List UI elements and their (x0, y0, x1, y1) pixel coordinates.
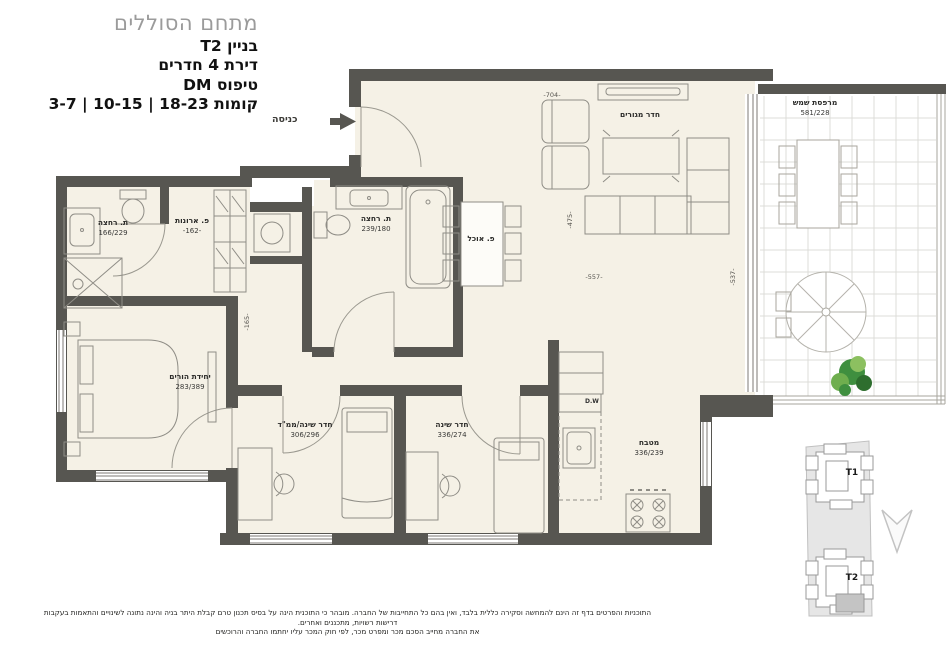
dim-living-top: -704- (530, 91, 574, 99)
terrace-floor (758, 92, 946, 404)
umbrella (786, 272, 866, 352)
floorplan-page: מתחם הסוללים בניין T2 דירת 4 חדרים טיפוס… (0, 0, 950, 650)
entrance-arrow-icon (330, 113, 356, 130)
dim-living-right: -537- (729, 255, 737, 299)
title-block: מתחם הסוללים בניין T2 דירת 4 חדרים טיפוס… (18, 12, 258, 112)
dim-living-left: -475- (566, 198, 574, 242)
room-label-bath-main: ת. רחצה 239/180 (328, 214, 424, 234)
keyplan-unit-highlight (836, 594, 864, 612)
room-label-kitchen: מטבח 336/239 (601, 438, 697, 458)
floors-range: קומות 18-23 | 10-15 | 3-7 (18, 96, 258, 112)
dishwasher-label: D.W (577, 398, 607, 405)
room-label-dining: פ. אוכל (433, 234, 529, 244)
entrance-label: כניסה (272, 114, 332, 125)
building-name: בניין T2 (18, 38, 258, 54)
room-label-living: חדר מגורים (592, 110, 688, 120)
room-label-bedroom-mamad: חדר שינה/ממ"ד 306/296 (257, 420, 353, 440)
disclaimer-line2: את החברה מחייב הסכם מכר ומפרט מכר, לפי ח… (40, 627, 655, 637)
room-label-terrace: מרפסת שמש 581/228 (767, 98, 863, 118)
plan-type: טיפוס DM (18, 77, 258, 93)
apartment-type: דירת 4 חדרים (18, 57, 258, 73)
room-label-closets: פ. ארונות -162- (144, 216, 240, 236)
north-arrow-icon (882, 510, 912, 552)
disclaimer-text: התוכניות והפרטים בדף זה הינם להמחשה וסקי… (40, 608, 655, 637)
room-label-master: יחידת הורים 283/389 (142, 372, 238, 392)
keyplan-label-t2: T2 (837, 573, 867, 583)
project-name: מתחם הסוללים (18, 12, 258, 34)
disclaimer-line1: התוכניות והפרטים בדף זה הינם להמחשה וסקי… (40, 608, 655, 627)
dim-corridor: -165- (243, 300, 251, 344)
dim-living-bottom: -557- (572, 273, 616, 281)
keyplan-label-t1: T1 (837, 468, 867, 478)
room-label-bedroom2: חדר שינה 336/274 (404, 420, 500, 440)
